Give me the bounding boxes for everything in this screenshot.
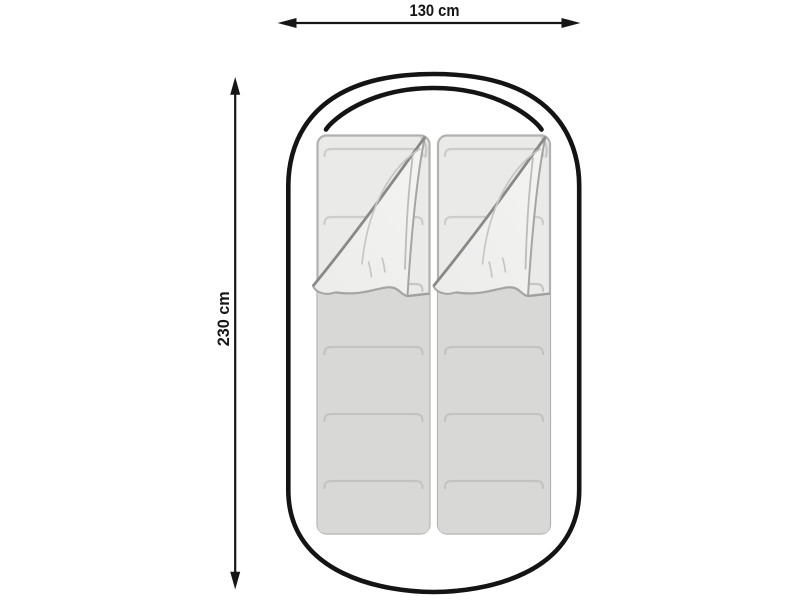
svg-text:130 cm: 130 cm <box>410 1 460 20</box>
svg-text:230 cm: 230 cm <box>214 291 233 346</box>
